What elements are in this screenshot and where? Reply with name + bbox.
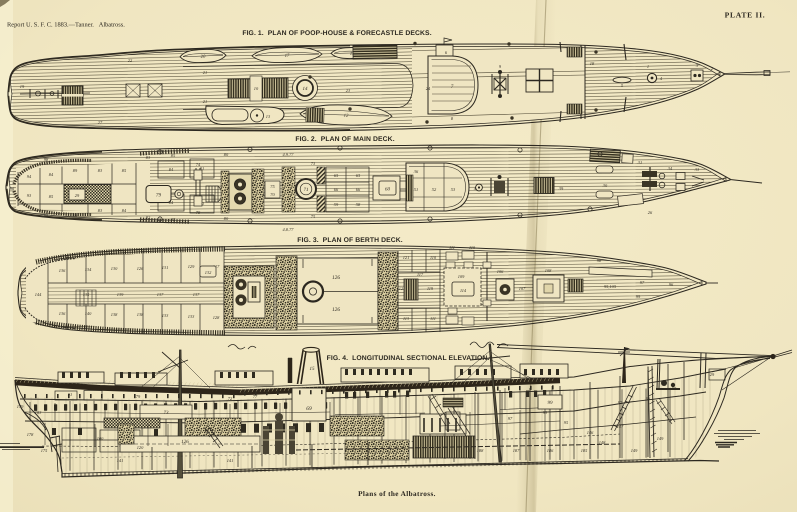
svg-text:186: 186: [547, 448, 554, 453]
svg-text:134: 134: [85, 267, 92, 272]
svg-text:111: 111: [449, 245, 455, 250]
svg-text:PLATE II.: PLATE II.: [725, 11, 766, 20]
svg-text:FIG. 2. PLAN OF MAIN DECK.: FIG. 2. PLAN OF MAIN DECK.: [295, 136, 394, 143]
svg-text:109: 109: [458, 274, 465, 279]
svg-text:108: 108: [545, 268, 552, 273]
svg-text:179: 179: [17, 404, 24, 409]
svg-text:FIG. 4. LONGITUDINAL SECTIONA: FIG. 4. LONGITUDINAL SECTIONAL ELEVATION…: [327, 355, 490, 362]
svg-text:126: 126: [181, 439, 189, 445]
svg-text:113: 113: [403, 316, 410, 321]
svg-text:15: 15: [310, 366, 316, 372]
svg-text:FIG. 1. PLAN OF POOP-HOUSE &: FIG. 1. PLAN OF POOP-HOUSE & FORECASTLE …: [242, 30, 431, 37]
svg-text:136: 136: [59, 311, 66, 316]
svg-text:137: 137: [193, 292, 200, 297]
svg-text:110: 110: [430, 255, 437, 260]
svg-text:69: 69: [306, 406, 312, 412]
svg-text:4.8.77: 4.8.77: [283, 227, 295, 232]
svg-text:126: 126: [137, 266, 144, 271]
svg-text:119: 119: [427, 286, 434, 291]
svg-text:31: 31: [638, 160, 642, 165]
svg-text:121: 121: [403, 255, 410, 260]
svg-text:95,105: 95,105: [604, 284, 617, 289]
svg-text:111: 111: [430, 316, 436, 321]
svg-text:110: 110: [469, 245, 476, 250]
svg-text:135: 135: [83, 292, 90, 297]
svg-text:120: 120: [137, 445, 144, 450]
svg-text:138: 138: [137, 312, 144, 317]
svg-text:103: 103: [35, 410, 42, 415]
svg-text:136: 136: [59, 268, 66, 273]
svg-text:73: 73: [164, 410, 170, 416]
svg-text:141: 141: [117, 458, 124, 463]
svg-text:4.9.77: 4.9.77: [283, 152, 295, 157]
svg-text:149: 149: [631, 448, 638, 453]
svg-text:133: 133: [162, 313, 169, 318]
svg-text:149: 149: [657, 436, 664, 441]
svg-text:185: 185: [581, 448, 588, 453]
svg-text:141: 141: [227, 458, 234, 463]
svg-text:126: 126: [332, 307, 340, 313]
svg-text:106: 106: [497, 269, 504, 274]
svg-text:144: 144: [35, 292, 42, 297]
svg-text:126: 126: [332, 275, 340, 281]
svg-text:1: 1: [647, 64, 649, 69]
svg-text:128: 128: [213, 315, 220, 320]
svg-text:148: 148: [599, 440, 606, 445]
svg-text:99: 99: [548, 400, 554, 406]
svg-text:139: 139: [117, 292, 124, 297]
svg-text:Report U. S. F. C. 1883.—Tanne: Report U. S. F. C. 1883.—Tanner. Albatro…: [7, 22, 125, 29]
svg-text:21: 21: [203, 70, 207, 75]
svg-text:117: 117: [417, 272, 424, 277]
svg-text:7: 7: [451, 84, 454, 90]
svg-text:138: 138: [111, 312, 118, 317]
svg-text:60: 60: [385, 187, 391, 193]
svg-text:112: 112: [397, 286, 404, 291]
svg-text:178: 178: [27, 432, 34, 437]
svg-text:14: 14: [303, 86, 309, 92]
svg-text:107: 107: [519, 286, 526, 291]
svg-text:79: 79: [156, 193, 162, 199]
svg-text:175: 175: [41, 448, 48, 453]
svg-text:130: 130: [111, 266, 118, 271]
svg-text:187: 187: [513, 448, 520, 453]
svg-text:188: 188: [477, 448, 484, 453]
svg-text:21: 21: [203, 99, 207, 104]
svg-text:132: 132: [205, 270, 212, 275]
svg-text:71: 71: [304, 187, 309, 193]
svg-text:FIG. 3. PLAN OF BERTH DECK.: FIG. 3. PLAN OF BERTH DECK.: [297, 237, 403, 244]
svg-text:131: 131: [162, 265, 169, 270]
svg-text:129: 129: [188, 264, 195, 269]
svg-text:133: 133: [188, 314, 195, 319]
svg-text:Plans of the Albatross.: Plans of the Albatross.: [358, 490, 436, 498]
svg-text:137: 137: [157, 292, 164, 297]
svg-text:51: 51: [414, 187, 418, 192]
svg-text:114: 114: [460, 288, 467, 293]
svg-text:140: 140: [85, 311, 92, 316]
